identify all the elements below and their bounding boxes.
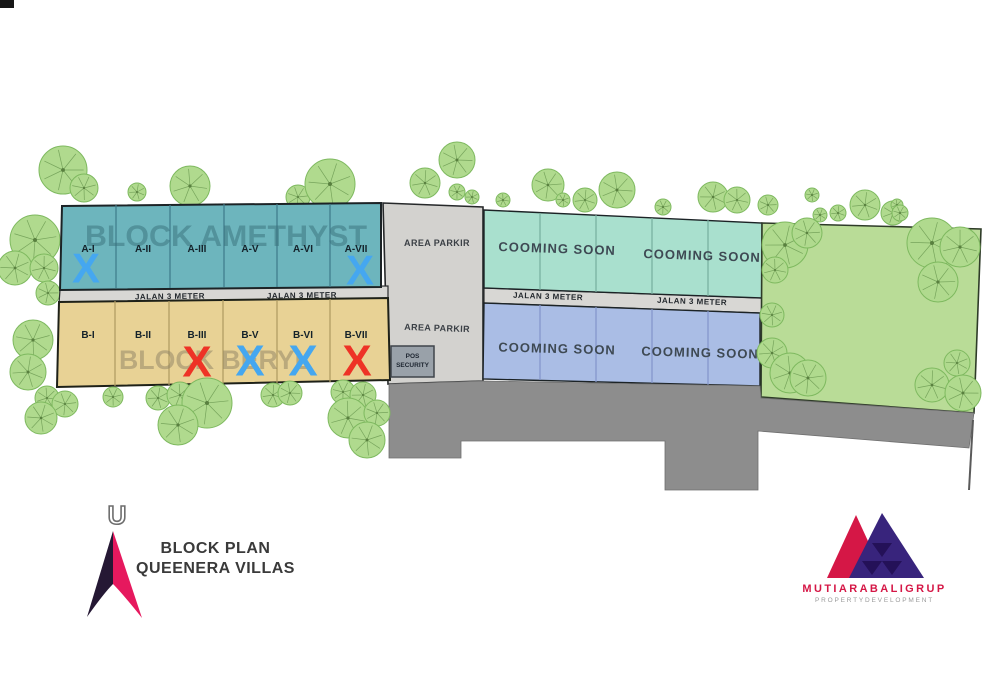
tree-icon [305,159,355,209]
developer-logo-mark [792,505,957,580]
tree-icon [698,182,728,212]
north-label: U [108,500,127,530]
tree-icon [813,208,827,222]
cooming-soon-south-label: COOMING SOON [498,339,616,357]
tree-icon [465,190,479,204]
tree-icon [599,172,635,208]
lot-label: B-I [81,330,95,341]
developer-logo: MUTIARABALIGRUP PROPERTYDEVELOPMENT [792,505,957,604]
tree-icon [573,188,597,212]
plan-title-line1: BLOCK PLAN [128,539,303,559]
tree-icon [70,174,98,202]
tree-icon [25,402,57,434]
tree-icon [158,405,198,445]
tree-icon [830,205,846,221]
tree-icon [892,205,908,221]
x-mark-icon: X [72,245,100,292]
tree-icon [0,251,32,285]
tree-icon [760,303,784,327]
tree-icon [762,257,788,283]
tree-icon [36,281,60,305]
pos-security-label: POS [406,353,420,360]
lot-label: A-V [241,244,259,255]
tree-icon [915,368,949,402]
tree-icon [410,168,440,198]
developer-name: MUTIARABALIGRUP [792,583,957,595]
x-mark-icon: X [235,337,264,386]
tree-icon [850,190,880,220]
pos-security-label: SECURITY [396,362,430,369]
developer-tagline: PROPERTYDEVELOPMENT [792,597,957,604]
tree-icon [944,350,970,376]
corner-mark [0,0,14,8]
block-watermark: BLOCK AMETHYST [85,220,367,253]
block-amethyst: BLOCK AMETHYSTA-IA-IIA-IIIA-VA-VIA-VIIXX [60,203,381,294]
tree-icon [449,184,465,200]
tree-icon [940,227,980,267]
plan-title-line2: QUEENERA VILLAS [128,559,303,579]
tree-icon [170,166,210,206]
tree-icon [439,142,475,178]
tree-icon [655,199,671,215]
tree-icon [792,218,822,248]
tree-icon [556,193,570,207]
lot-label: A-III [188,244,207,255]
tree-icon [13,320,53,360]
lot-label: B-II [135,330,151,341]
tree-icon [146,386,170,410]
cooming-soon-south: COOMING SOONCOOMING SOON [483,303,760,386]
tree-icon [790,360,826,396]
tree-icon [945,375,981,411]
tree-icon [103,387,123,407]
pos-security: POSSECURITY [391,346,434,377]
tree-icon [724,187,750,213]
lot-label: A-VI [293,244,313,255]
cooming-soon-north: COOMING SOONCOOMING SOON [484,210,762,298]
area-parkir-label: AREA PARKIR [404,238,470,248]
block-watermark: BLOCK BERYL [119,345,311,375]
x-mark-icon: X [342,337,371,386]
tree-icon [278,381,302,405]
tree-icon [349,422,385,458]
cooming-soon-south-label: COOMING SOON [641,343,759,361]
tree-icon [128,183,146,201]
lot-label: A-II [135,244,151,255]
x-mark-icon: X [288,337,317,386]
x-mark-icon: X [346,247,374,294]
block-beryl: BLOCK BERYLB-IB-IIB-IIIB-VB-VIB-VIIXXXX [57,298,390,387]
tree-icon [805,188,819,202]
plan-title: BLOCK PLAN QUEENERA VILLAS [128,539,303,579]
tree-icon [918,262,958,302]
north-arrow-left [87,531,113,617]
tree-icon [758,195,778,215]
tree-icon [30,254,58,282]
tree-icon [10,354,46,390]
tree-icon [496,193,510,207]
block-plan-canvas: AREA PARKIRAREA PARKIRJALAN 3 METERJALAN… [0,0,991,700]
